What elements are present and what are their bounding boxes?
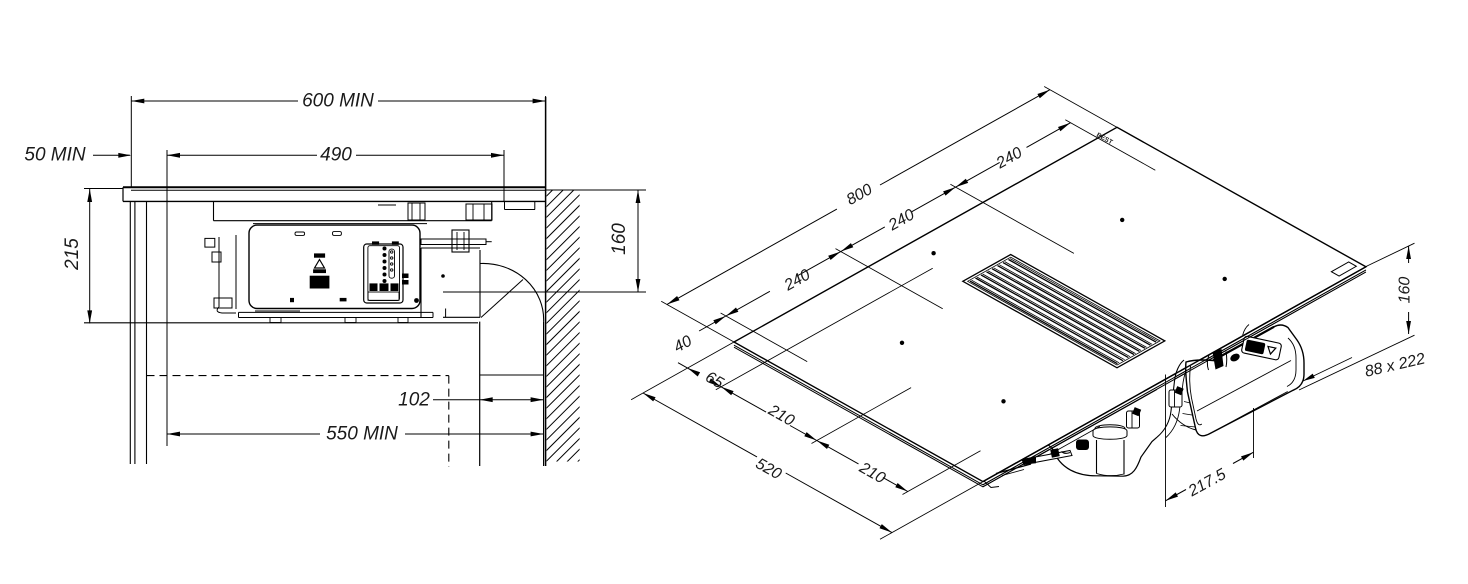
svg-text:240: 240 [993,144,1026,172]
svg-text:240: 240 [781,266,814,294]
svg-text:40: 40 [671,333,695,357]
svg-text:600 MIN: 600 MIN [302,91,374,112]
svg-text:210: 210 [856,459,889,487]
svg-text:217.5: 217.5 [1185,466,1229,501]
svg-text:50 MIN: 50 MIN [24,145,86,166]
svg-text:215: 215 [62,238,83,271]
svg-text:65: 65 [702,369,726,393]
svg-text:520: 520 [752,455,784,483]
svg-text:160: 160 [609,223,630,255]
svg-text:102: 102 [398,390,430,411]
svg-text:240: 240 [885,206,918,234]
svg-text:550 MIN: 550 MIN [326,424,398,445]
svg-text:800: 800 [844,181,876,209]
svg-text:490: 490 [320,145,352,166]
svg-text:160: 160 [1397,277,1414,304]
svg-text:210: 210 [765,401,798,429]
